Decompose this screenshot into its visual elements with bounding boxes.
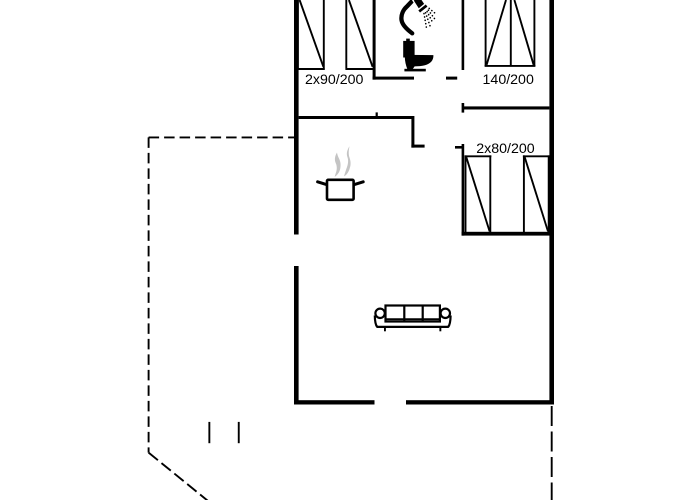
- svg-text:2x90/200: 2x90/200: [305, 72, 363, 88]
- svg-text:140/200: 140/200: [483, 72, 534, 88]
- svg-text:2x80/200: 2x80/200: [476, 141, 534, 157]
